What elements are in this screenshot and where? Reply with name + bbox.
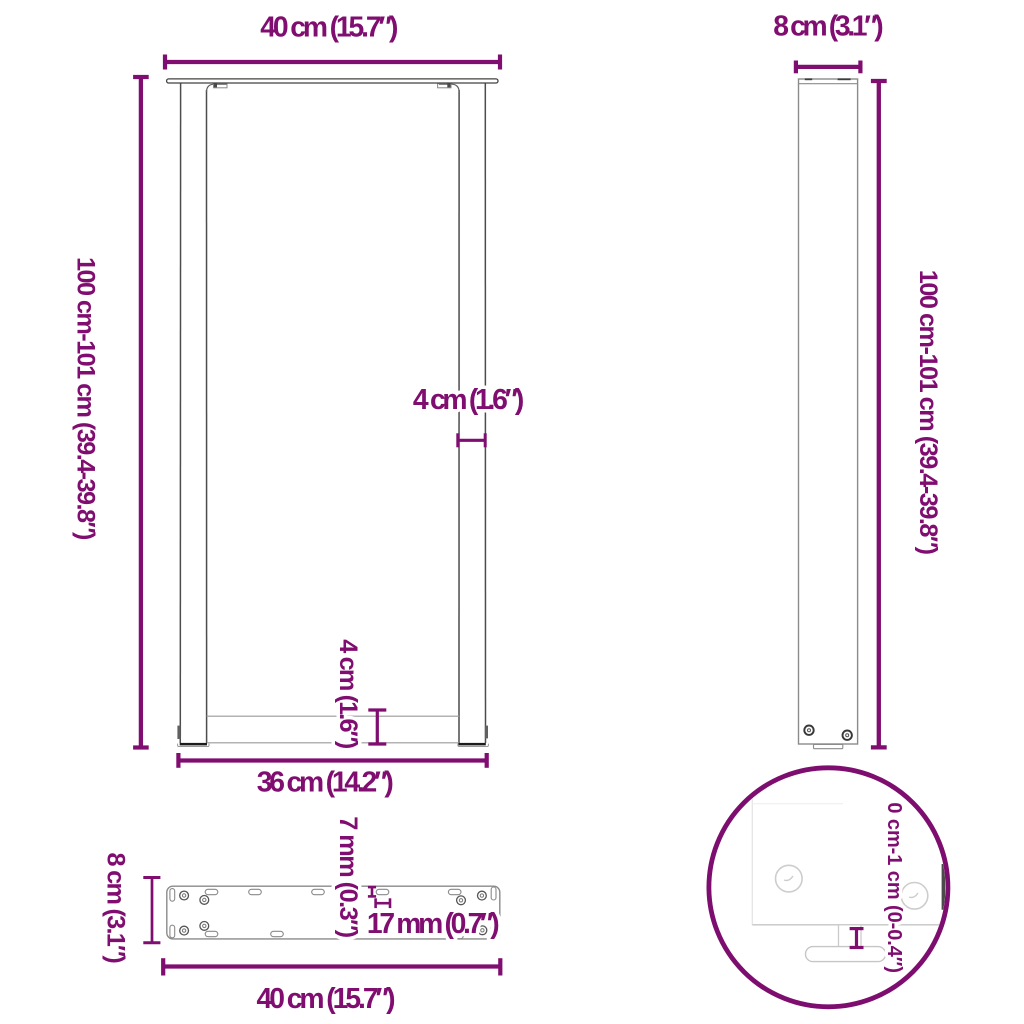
svg-text:100 cm-101 cm (39.4-39.8″): 100 cm-101 cm (39.4-39.8″): [71, 257, 99, 541]
svg-text:100 cm-101 cm (39.4-39.8″): 100 cm-101 cm (39.4-39.8″): [914, 270, 942, 555]
svg-text:4 cm (1.6″): 4 cm (1.6″): [334, 639, 362, 749]
svg-text:40 cm (15.7″): 40 cm (15.7″): [257, 982, 396, 1014]
svg-text:0 cm-1 cm (0-0.4″): 0 cm-1 cm (0-0.4″): [883, 802, 905, 973]
svg-text:40 cm (15.7″): 40 cm (15.7″): [260, 11, 398, 43]
svg-text:8 cm (3.1″): 8 cm (3.1″): [773, 9, 883, 41]
svg-text:8 cm (3.1″): 8 cm (3.1″): [102, 853, 130, 964]
svg-text:4 cm (1.6″): 4 cm (1.6″): [413, 383, 524, 415]
svg-text:17 mm (0.7″): 17 mm (0.7″): [367, 907, 500, 939]
svg-text:7 mm (0.3″): 7 mm (0.3″): [334, 816, 362, 938]
svg-text:36 cm (14.2″): 36 cm (14.2″): [257, 766, 394, 798]
